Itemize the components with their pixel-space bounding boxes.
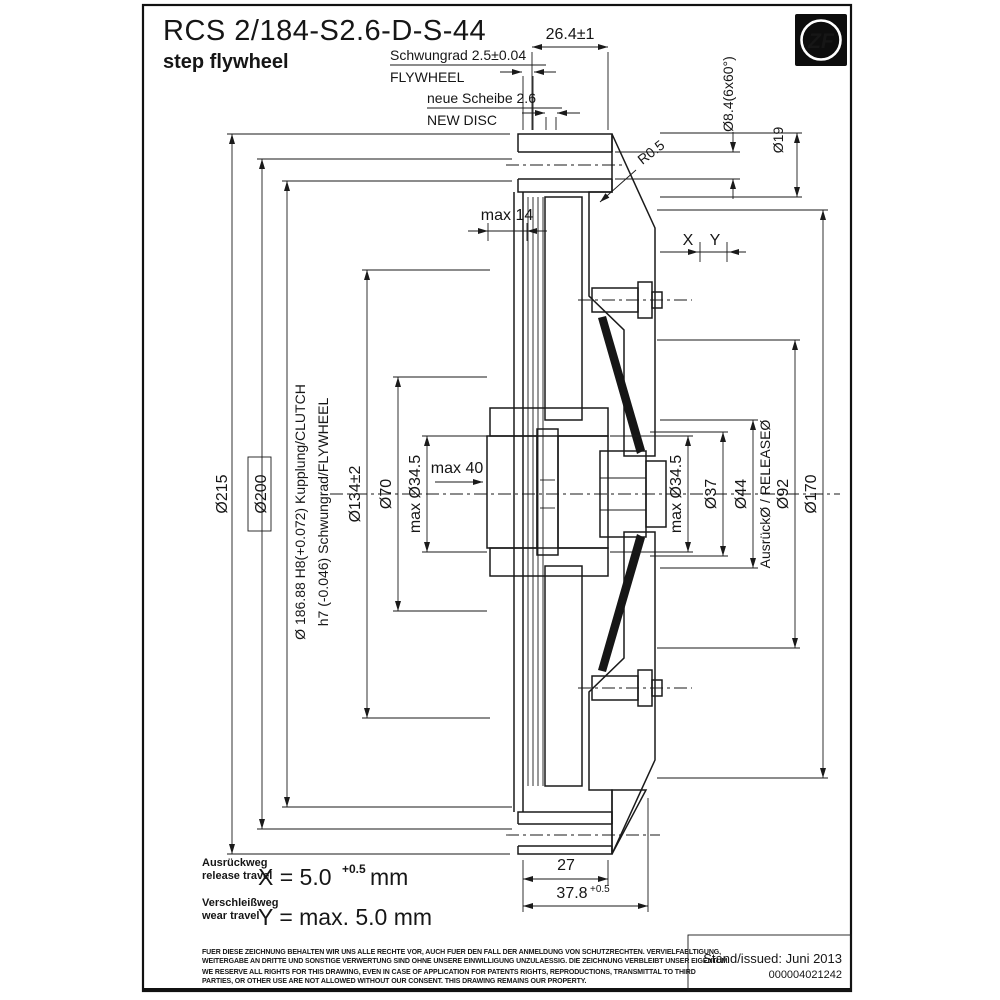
dim-378-tolerance: +0.5 [590, 884, 610, 895]
footer-legal: FUER DIESE ZEICHNUNG BEHALTEN WIR UNS AL… [202, 949, 729, 985]
pressure-plate-top [545, 197, 582, 420]
document-number: 000004021242 [769, 969, 842, 981]
dim-max40-label: max 40 [431, 460, 484, 477]
hub-splines-left [487, 436, 537, 548]
travel-notes: Ausrückweg release travel X = 5.0 +0.5 m… [201, 857, 432, 930]
pivot-bolt-top [578, 282, 692, 318]
dim-d200-label: Ø200 [253, 474, 270, 513]
diaphragm-spring-top [598, 316, 645, 454]
zf-logo-text: ZF [807, 30, 835, 53]
hub-sleeve [537, 429, 558, 555]
dim-d70-label: Ø70 [378, 479, 395, 509]
bolt-hole-label: Ø8.4(6x60°) [720, 56, 736, 132]
hub-flange-top [490, 408, 608, 436]
zf-logo: ZF [795, 14, 847, 66]
drawing-canvas: RCS 2/184-S2.6-D-S-44 step flywheel ZF [0, 0, 1000, 1000]
issue-block: Stand/issued: Juni 2013 000004021242 [688, 935, 851, 990]
dim-h7-fit-label: h7 (-0.046) Schwungrad/FLYWHEEL [315, 398, 331, 627]
dim-y-label: Y [710, 232, 721, 249]
release-travel-value: X = 5.0 [258, 864, 332, 890]
legal-en-line2: PARTIES, OR OTHER USE ARE NOT ALLOWED WI… [202, 978, 587, 985]
pressure-plate-bottom [545, 566, 582, 786]
issue-date: Stand/issued: Juni 2013 [703, 951, 842, 966]
wear-travel-value: Y = max. 5.0 mm [258, 904, 432, 930]
clutch-disc [528, 197, 543, 786]
hub-flange-bottom [490, 548, 608, 576]
diaphragm-spring-bottom [598, 534, 645, 672]
clutch-cover-bottom [589, 532, 655, 854]
dim-264-label: 26.4±1 [546, 26, 595, 43]
wear-travel-en: wear travel [201, 910, 259, 922]
dim-d215-label: Ø215 [214, 474, 231, 513]
dim-d170-label: Ø170 [803, 474, 820, 513]
dim-d345-left-label: max Ø34.5 [407, 455, 424, 533]
dim-x-label: X [683, 232, 694, 249]
dim-d92-label: Ø92 [775, 479, 792, 509]
flywheel-web [514, 192, 523, 812]
technical-drawing-sheet: { "title": { "model": "RCS 2/184-S2.6-D-… [0, 0, 1000, 1000]
flywheel-note-de: Schwungrad 2.5±0.04 [390, 47, 526, 63]
release-dia-label: AusrückØ / RELEASEØ [757, 420, 773, 569]
pivot-bolt-bottom [578, 670, 692, 706]
dim-27-label: 27 [557, 857, 575, 874]
flywheel-rim-top [506, 134, 624, 192]
drawing-title: RCS 2/184-S2.6-D-S-44 [163, 15, 486, 47]
dim-d37-label: Ø37 [703, 479, 720, 509]
dim-d345-right-label: max Ø34.5 [668, 455, 685, 533]
dim-378-label: 37.8 [556, 885, 587, 902]
disc-note-en: NEW DISC [427, 112, 497, 128]
disc-note-de: neue Scheibe 2.6 [427, 90, 536, 106]
dim-d134-label: Ø134±2 [347, 465, 364, 522]
drawing-subtitle: step flywheel [163, 51, 289, 73]
legal-de-line2: WEITERGABE AN DRITTE UND SONSTIGE VERWER… [202, 958, 729, 965]
dim-d186-fit-label: Ø 186.88 H8(+0.072) Kupplung/CLUTCH [292, 384, 308, 640]
legal-en-line1: WE RESERVE ALL RIGHTS FOR THIS DRAWING, … [202, 969, 696, 976]
dim-d44-label: Ø44 [733, 479, 750, 509]
boss-d19-label: Ø19 [770, 127, 786, 154]
release-travel-tolerance: +0.5 [342, 862, 366, 876]
flywheel-note-en: FLYWHEEL [390, 69, 465, 85]
release-bearing [600, 451, 666, 537]
dimensions-top: 26.4±1 Schwungrad 2.5±0.04 FLYWHEEL neue… [390, 26, 802, 262]
release-travel-unit: mm [370, 864, 408, 890]
spline-hub [487, 408, 608, 576]
legal-de-line1: FUER DIESE ZEICHNUNG BEHALTEN WIR UNS AL… [202, 949, 721, 956]
dim-max14-label: max 14 [481, 207, 534, 224]
